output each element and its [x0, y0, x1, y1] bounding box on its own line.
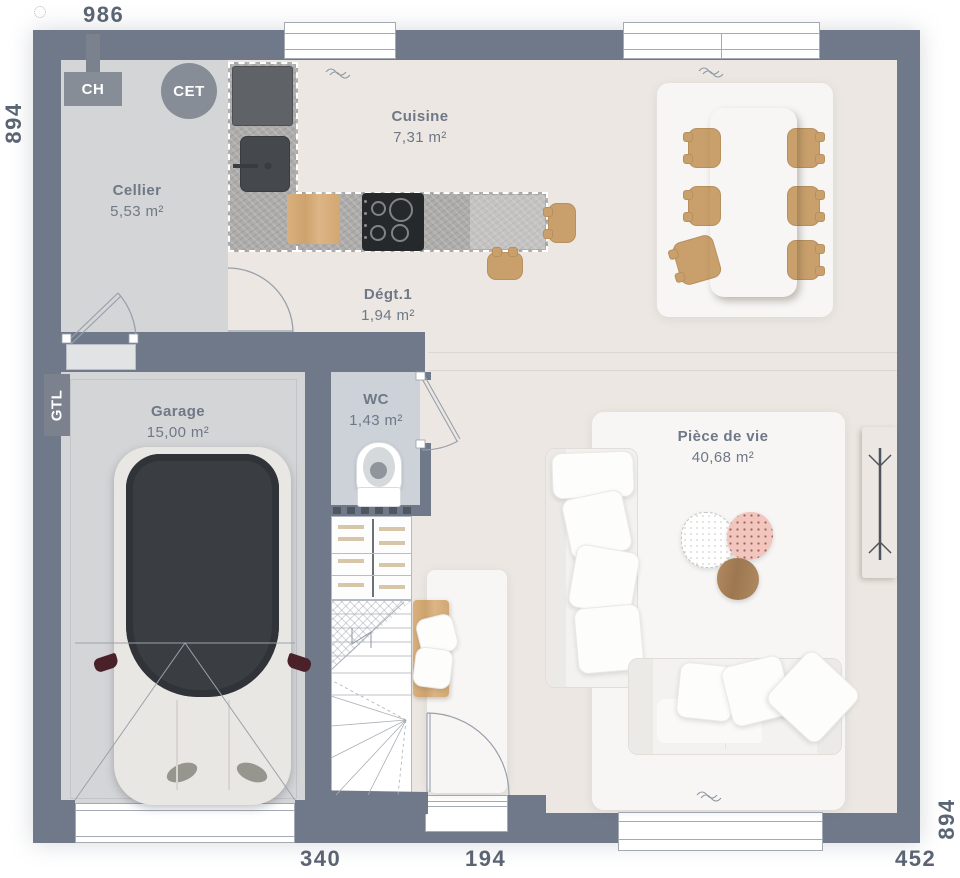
- garage-door-line: [76, 836, 294, 837]
- ch-box: CH: [64, 72, 122, 106]
- kitchen-stool: [487, 252, 523, 280]
- doorstep-line: [426, 806, 507, 807]
- kitchen-stool: [548, 203, 576, 243]
- cet-label: CET: [173, 83, 205, 100]
- room-label-cuisine: Cuisine 7,31 m²: [392, 106, 449, 148]
- stove-knob: [364, 224, 367, 227]
- dimension-bottom-garage: 340: [300, 846, 341, 872]
- burner: [391, 224, 409, 242]
- door-cellier-garage-opening: [66, 344, 136, 370]
- dimension-value: 194: [465, 846, 506, 871]
- chair-tab: [815, 212, 825, 222]
- chair-tab: [674, 271, 686, 283]
- sofa-armrest: [629, 659, 653, 754]
- room-label-piece-de-vie: Pièce de vie 40,68 m²: [678, 426, 769, 468]
- toilet-tank: [357, 487, 401, 507]
- closet-item: [338, 583, 364, 587]
- dimension-value: 340: [300, 846, 341, 871]
- closet-item: [338, 537, 364, 541]
- stove: [362, 193, 424, 251]
- window-dining: [623, 22, 820, 59]
- car-hood-line: [176, 700, 230, 790]
- room-name: Dégt.1: [361, 284, 415, 305]
- stove-knob: [364, 200, 367, 203]
- stove-knob: [364, 236, 367, 239]
- closet-item: [338, 559, 364, 563]
- chair-tab: [815, 132, 825, 142]
- closet-item: [379, 541, 405, 545]
- chair-tab: [815, 244, 825, 254]
- dimension-value: 452: [895, 846, 936, 871]
- kitchen-bar-light-end: [470, 195, 545, 249]
- closet-item: [379, 527, 405, 531]
- window-frame-line: [285, 49, 395, 50]
- closet-shelf-line: [332, 575, 411, 576]
- window-frame-line: [619, 839, 822, 840]
- cutting-board: [287, 194, 340, 244]
- stool-tab: [492, 247, 502, 257]
- wall-left: [33, 30, 61, 843]
- ch-duct: [86, 34, 100, 74]
- room-area: 15,00 m²: [147, 422, 209, 443]
- room-label-garage: Garage 15,00 m²: [147, 401, 209, 443]
- gtl-label: GTL: [49, 389, 66, 421]
- wall-garage-door-stub-right: [295, 800, 307, 820]
- stool-tab: [543, 207, 553, 217]
- window-mullion: [721, 33, 722, 59]
- chair-tab: [815, 190, 825, 200]
- bench-cushion: [412, 646, 455, 690]
- chair-tab: [683, 212, 693, 222]
- toilet-flush: [370, 462, 387, 479]
- burner: [389, 198, 413, 222]
- chair-tab: [667, 248, 679, 260]
- room-area: 5,53 m²: [110, 201, 164, 222]
- gtl-box: GTL: [44, 374, 70, 436]
- room-name: Pièce de vie: [678, 426, 769, 447]
- fridge: [232, 66, 293, 126]
- room-divider-line: [428, 352, 897, 353]
- chair-tab: [683, 154, 693, 164]
- room-label-degagement: Dégt.1 1,94 m²: [361, 284, 415, 326]
- dining-table: [710, 108, 797, 297]
- dimension-left: 894: [1, 99, 27, 147]
- window-frame-line: [619, 821, 822, 822]
- dimension-value: 986: [83, 2, 124, 27]
- sideboard: [862, 427, 897, 578]
- room-label-cellier: Cellier 5,53 m²: [110, 180, 164, 222]
- floor-plan-canvas: CH CET GTL: [0, 0, 960, 878]
- closet-shelf-line: [332, 553, 411, 554]
- stool-tab: [508, 247, 518, 257]
- room-area: 1,94 m²: [361, 305, 415, 326]
- chair-tab: [815, 266, 825, 276]
- window-living: [618, 812, 823, 851]
- ch-label: CH: [82, 81, 105, 98]
- stool-tab: [543, 229, 553, 239]
- dimension-value: 894: [1, 102, 26, 143]
- garage-door-opening: [75, 803, 295, 843]
- burner: [370, 225, 386, 241]
- wall-wc-right-bottom: [420, 443, 431, 516]
- room-area: 1,43 m²: [349, 410, 403, 431]
- room-area: 7,31 m²: [392, 127, 449, 148]
- chair-tab: [683, 132, 693, 142]
- wall-entry-step: [507, 795, 546, 820]
- dimension-right: 894: [934, 795, 960, 843]
- room-name: WC: [349, 389, 403, 410]
- doorstep-line: [426, 801, 507, 802]
- sink: [240, 136, 290, 192]
- garage-door-line: [76, 810, 294, 811]
- room-name: Garage: [147, 401, 209, 422]
- room-name: Cuisine: [392, 106, 449, 127]
- room-label-wc: WC 1,43 m²: [349, 389, 403, 431]
- closet-item: [338, 525, 364, 529]
- closet-item: [379, 563, 405, 567]
- stove-knob: [364, 212, 367, 215]
- dimension-bottom-entry: 194: [465, 846, 506, 872]
- dimension-top: 986: [83, 2, 124, 28]
- room-divider-line: [428, 370, 897, 371]
- dimension-value: 894: [934, 798, 959, 839]
- cet-circle: CET: [161, 63, 217, 119]
- closet-rod: [372, 519, 374, 597]
- closet: [331, 516, 412, 600]
- window-frame-line: [285, 33, 395, 34]
- wall-garage-door-stub-left: [61, 800, 75, 820]
- burner: [371, 201, 386, 216]
- dashed-partition: [333, 507, 412, 514]
- window-kitchen: [284, 22, 396, 59]
- closet-item: [379, 585, 405, 589]
- sofa-headrest: [551, 451, 635, 500]
- wall-wc-right-top: [420, 372, 431, 380]
- wall-wc-left: [318, 372, 331, 516]
- room-area: 40,68 m²: [678, 447, 769, 468]
- dimension-marker-circle: [34, 6, 46, 18]
- entry-doorstep: [425, 795, 508, 832]
- chair-tab: [815, 154, 825, 164]
- coffee-table-wood: [717, 558, 759, 600]
- room-name: Cellier: [110, 180, 164, 201]
- car-roof: [126, 454, 279, 697]
- chair-tab: [683, 190, 693, 200]
- dimension-bottom-living: 452: [895, 846, 936, 872]
- wall-right: [897, 30, 920, 843]
